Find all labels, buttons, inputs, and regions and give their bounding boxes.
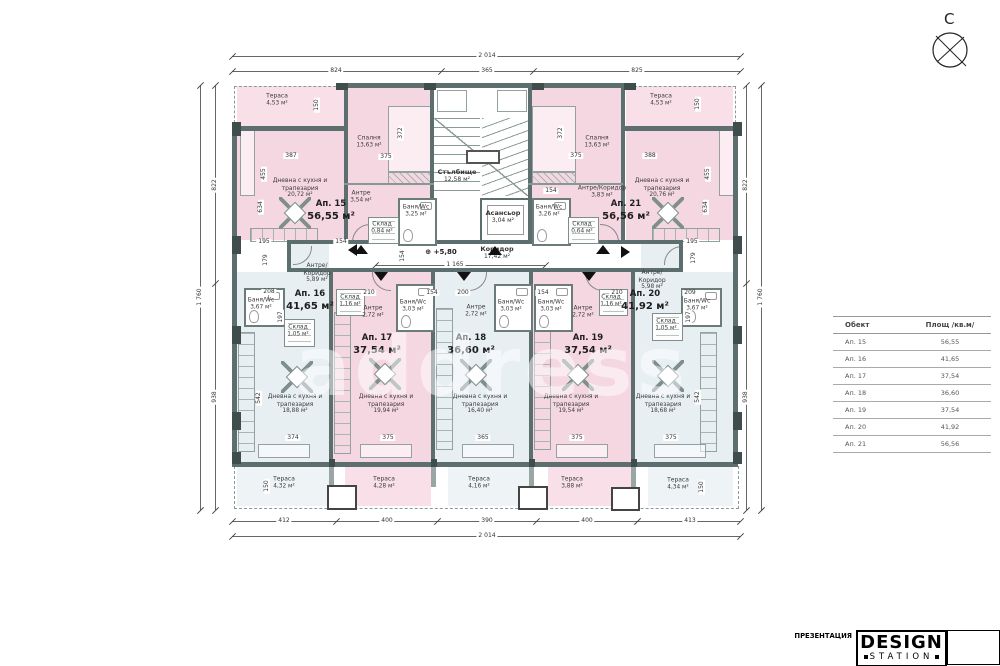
room-name: Дневна с кухня и трапезария [453, 393, 508, 408]
room-label: Дневна с кухня и трапезария18,88 м² [268, 393, 323, 415]
dining-table [280, 360, 314, 394]
room-label: Дневна с кухня и трапезария20,76 м² [635, 177, 690, 199]
cell-area: 56,55 [909, 338, 991, 346]
dimension-label: 938 [212, 389, 218, 404]
area-table-header: Обект Площ /кв.м/ [833, 316, 991, 334]
dining-table [368, 357, 402, 391]
dimension-label: 455 [261, 166, 267, 181]
room-name: Склад [339, 294, 360, 302]
entrance-arrow-icon [582, 272, 596, 281]
structural-pier [232, 122, 241, 136]
kitchen-counter [436, 308, 453, 450]
room-area: 4,53 м² [650, 100, 672, 107]
room-area: 16,40 м² [453, 408, 508, 415]
room-name: Дневна с кухня и трапезария [273, 177, 328, 192]
room-label: Баня/Wc3,03 м² [400, 299, 427, 314]
room-label-elevator: Асансьор 3,04 м² [486, 209, 521, 225]
room-name: Дневна с кухня и трапезария [268, 393, 323, 408]
room-area: 1,05 м² [655, 325, 676, 332]
room-label: Антре2,72 м² [465, 304, 486, 319]
room-area: 1,16 м² [339, 301, 360, 308]
room-area: 3,03 м² [498, 306, 525, 313]
room-label: Антре/ Коридор5,98 м² [638, 269, 665, 291]
dimension-label: 1 760 [197, 286, 203, 307]
apartment-area: 36,60 м² [447, 344, 495, 357]
room-name: Баня/Wc [538, 299, 565, 307]
room-label: Баня/Wc3,03 м² [498, 299, 525, 314]
apartment-number: Ап. 16 [286, 289, 334, 300]
dimension-label: 195 [256, 239, 271, 245]
room-name: Тераса [468, 476, 490, 484]
column-header-area: Площ /кв.м/ [909, 321, 991, 329]
entrance-arrow-icon [348, 244, 357, 256]
structural-pier [733, 122, 742, 136]
wall [679, 240, 683, 272]
dimension-label: 375 [378, 154, 393, 160]
furniture [532, 106, 576, 172]
room-name: Склад [600, 294, 621, 302]
logo-design: DESIGN [860, 635, 943, 651]
structural-pier [733, 236, 742, 254]
planter-box [518, 486, 548, 510]
room-area: 13,63 м² [356, 142, 381, 149]
cell-area: 41,92 [909, 423, 991, 431]
staircase [434, 118, 528, 196]
dimension-label: 400 [379, 518, 394, 524]
title-block-empty-box [947, 630, 1000, 665]
room-area: 4,32 м² [273, 483, 295, 490]
dimension-label: 150 [695, 96, 701, 111]
dimension-tick [737, 53, 744, 60]
apartment-number: Ап. 18 [447, 333, 495, 344]
level-mark: +5,80 [425, 248, 456, 256]
room-label: Антре2,72 м² [572, 305, 593, 320]
room-label: Баня/Wc3,26 м² [536, 204, 563, 219]
terrace-divider [431, 467, 436, 487]
dimension-tick [212, 507, 219, 514]
dimension-label: 208 [261, 289, 276, 295]
terrace-railing [234, 86, 346, 128]
room-area: 13,63 м² [584, 142, 609, 149]
dimension-label: 372 [558, 125, 564, 140]
structural-pier [631, 459, 637, 467]
dimension-label: 210 [361, 290, 376, 296]
apartment-label: Ап. 2041,92 м² [621, 289, 669, 313]
structural-pier [733, 326, 742, 344]
furniture [240, 128, 255, 196]
cell-object: Ап. 17 [833, 372, 909, 380]
structural-pier [232, 412, 241, 430]
apartment-number: Ап. 21 [602, 199, 650, 210]
wall [232, 462, 738, 467]
room-label: Склад1,16 м² [339, 294, 360, 309]
room-name: Дневна с кухня и трапезария [544, 393, 599, 408]
apartment-number: Ап. 15 [307, 199, 355, 210]
structural-pier [329, 459, 335, 467]
dimension-label: 150 [699, 479, 705, 494]
room-area: 5,89 м² [303, 277, 330, 284]
dimension-label: 365 [475, 435, 490, 441]
planter-box [611, 487, 640, 511]
cell-area: 36,60 [909, 389, 991, 397]
room-name: Антре [350, 190, 371, 198]
north-compass: С [912, 6, 988, 78]
dimension-label: 634 [703, 199, 709, 214]
room-label: Тераса4,16 м² [468, 476, 490, 491]
stair-rail [466, 150, 500, 164]
room-label: Дневна с кухня и трапезария18,68 м² [636, 393, 691, 415]
dimension-label: 375 [663, 435, 678, 441]
room-name: Тераса [650, 93, 672, 101]
dimension-label: 150 [314, 97, 320, 112]
room-name: Асансьор [486, 209, 521, 217]
dimension-label: 154 [535, 290, 550, 296]
logo-square-icon [935, 655, 939, 659]
room-area: 4,28 м² [373, 483, 395, 490]
room-label: Склад1,16 м² [600, 294, 621, 309]
dimension-label: 150 [264, 478, 270, 493]
apartment-label: Ап. 1937,54 м² [564, 333, 612, 357]
dimension-label: 2 014 [476, 533, 497, 539]
cell-object: Ап. 21 [833, 440, 909, 448]
dimension-label: 374 [285, 435, 300, 441]
structural-pier [529, 459, 535, 467]
dimension-label: 542 [695, 389, 701, 404]
room-label: Склад0,84 м² [371, 221, 392, 236]
room-name: Склад [371, 221, 392, 229]
structural-pier [624, 83, 636, 90]
cell-object: Ап. 15 [833, 338, 909, 346]
room-area: 12,58 м² [438, 176, 477, 184]
dimension-label: 542 [256, 390, 262, 405]
apartment-label: Ап. 1836,60 м² [447, 333, 495, 357]
room-area: 3,03 м² [400, 306, 427, 313]
room-name: Антре/ Коридор [303, 262, 330, 277]
room-name: Баня/Wc [400, 299, 427, 307]
entrance-arrow-icon [621, 246, 630, 258]
dimension-label: 375 [568, 153, 583, 159]
dimension-label: 822 [743, 177, 749, 192]
structural-pier [733, 452, 742, 464]
structural-pier [431, 459, 437, 467]
room-area: 18,88 м² [268, 408, 323, 415]
dimension-label: 1 760 [758, 286, 764, 307]
room-name: Баня/Wc [684, 298, 711, 306]
apartment-area: 56,55 м² [307, 210, 355, 223]
dimension-label: 195 [684, 239, 699, 245]
room-label: Дневна с кухня и трапезария20,72 м² [273, 177, 328, 199]
room-name: Тераса [667, 477, 689, 485]
room-label: Тераса3,88 м² [561, 476, 583, 491]
partition-wall [344, 183, 434, 185]
room-area: 2,72 м² [465, 311, 486, 318]
room-label: Склад1,05 м² [655, 318, 676, 333]
dimension-label: 825 [629, 68, 644, 74]
room-area: 3,67 м² [248, 304, 275, 311]
room-area: 2,72 м² [362, 312, 383, 319]
terrace-divider [529, 467, 534, 487]
dimension-label: 822 [212, 177, 218, 192]
room-name: Тераса [273, 476, 295, 484]
room-area: 3,26 м² [536, 211, 563, 218]
terrace-divider [631, 467, 636, 487]
dimension-label: 179 [691, 250, 697, 265]
wall [287, 240, 291, 272]
room-name: Склад [655, 318, 676, 326]
room-name: Тераса [373, 476, 395, 484]
room-area: 3,03 м² [538, 306, 565, 313]
dimension-label: 388 [642, 153, 657, 159]
apartment-area: 41,92 м² [621, 300, 669, 313]
logo-station: STATION [864, 652, 940, 662]
kitchen-counter [238, 332, 255, 452]
title-presentation: ПРЕЗЕНТАЦИЯ [577, 632, 852, 640]
column-header-object: Обект [833, 321, 909, 329]
table-row: Ап. 1556,55 [833, 334, 991, 351]
furniture [497, 90, 527, 112]
room-label: Баня/Wc3,67 м² [684, 298, 711, 313]
room-name: Антре [465, 304, 486, 312]
room-area: 1,05 м² [287, 331, 308, 338]
area-table-rows: Ап. 1556,55Ап. 1641,65Ап. 1737,54Ап. 183… [833, 334, 991, 453]
room-label: Тераса4,53 м² [650, 93, 672, 108]
structural-pier [424, 83, 436, 90]
room-label: Дневна с кухня и трапезария19,54 м² [544, 393, 599, 415]
room-name: Баня/Wc [536, 204, 563, 212]
apartment-label: Ап. 1641,65 м² [286, 289, 334, 313]
room-label: Баня/Wc3,25 м² [403, 204, 430, 219]
dimension-label: 375 [569, 435, 584, 441]
cell-object: Ап. 18 [833, 389, 909, 397]
dining-table [561, 358, 595, 392]
table-row: Ап. 2041,92 [833, 419, 991, 436]
table-row: Ап. 1836,60 [833, 385, 991, 402]
apartment-number: Ап. 19 [564, 333, 612, 344]
dimension-label: 1 165 [444, 262, 465, 268]
apartment-number: Ап. 20 [621, 289, 669, 300]
room-area: 3,67 м² [684, 305, 711, 312]
room-label: Тераса4,32 м² [273, 476, 295, 491]
dimension-label: 200 [455, 290, 470, 296]
dimension-label: 154 [400, 248, 406, 263]
apartment-number: Ап. 17 [353, 333, 401, 344]
entrance-arrow-icon [488, 246, 502, 255]
room-area: 2,72 м² [572, 312, 593, 319]
logo-square-icon [864, 655, 868, 659]
room-area: 0,84 м² [371, 228, 392, 235]
room-name: Стълбище [438, 168, 477, 176]
dimension-tick [737, 518, 744, 525]
dimension-label: 2 014 [476, 53, 497, 59]
furniture [258, 444, 310, 458]
dimension-line [746, 85, 747, 510]
structural-pier [232, 452, 241, 464]
apartment-area: 56,56 м² [602, 210, 650, 223]
room-name: Антре/Коридор [578, 185, 626, 193]
room-area: 3,25 м² [403, 211, 430, 218]
room-name: Склад [571, 221, 592, 229]
cell-area: 41,65 [909, 355, 991, 363]
room-label-staircase: Стълбище 12,58 м² [438, 168, 477, 184]
dimension-label: 390 [479, 518, 494, 524]
furniture [556, 444, 608, 458]
dimension-tick [197, 507, 204, 514]
dimension-label: 387 [283, 153, 298, 159]
structural-pier [232, 326, 241, 344]
room-label: Склад0,64 м² [571, 221, 592, 236]
room-label: Тераса4,34 м² [667, 477, 689, 492]
area-table: Обект Площ /кв.м/ Ап. 1556,55Ап. 1641,65… [833, 316, 991, 453]
table-row: Ап. 2156,56 [833, 436, 991, 453]
cell-area: 37,54 [909, 372, 991, 380]
kitchen-counter [700, 332, 717, 452]
room-area: 19,94 м² [359, 408, 414, 415]
entrance-arrow-icon [374, 272, 388, 281]
table-row: Ап. 1641,65 [833, 351, 991, 368]
room-label: Дневна с кухня и трапезария19,94 м² [359, 393, 414, 415]
furniture [388, 106, 432, 172]
room-name: Спалня [356, 135, 381, 143]
entrance-arrow-icon [596, 245, 610, 254]
dimension-tick [743, 507, 750, 514]
room-label: Спалня13,63 м² [584, 135, 609, 150]
dimension-label: 634 [258, 199, 264, 214]
apartment-label: Ап. 2156,56 м² [602, 199, 650, 223]
apartment-area: 41,65 м² [286, 300, 334, 313]
cell-area: 56,56 [909, 440, 991, 448]
room-label: Спалня13,63 м² [356, 135, 381, 150]
dining-table [651, 196, 685, 230]
dining-table [651, 359, 685, 393]
structural-pier [232, 236, 241, 254]
north-letter: С [944, 10, 954, 28]
room-name: Дневна с кухня и трапезария [359, 393, 414, 408]
furniture [654, 444, 706, 458]
structural-pier [336, 83, 348, 90]
wall [625, 126, 738, 131]
room-name: Дневна с кухня и трапезария [636, 393, 691, 408]
room-name: Баня/Wc [248, 297, 275, 305]
furniture [360, 444, 412, 458]
dimension-tick [737, 533, 744, 540]
apartment-area: 37,54 м² [564, 344, 612, 357]
room-area: 3,04 м² [486, 217, 521, 225]
room-area: 4,53 м² [266, 100, 288, 107]
wall [340, 83, 632, 88]
dimension-label: 375 [380, 435, 395, 441]
dimension-label: 154 [424, 290, 439, 296]
terrace-railing [624, 86, 736, 128]
apartment-area: 37,54 м² [353, 344, 401, 357]
room-name: Спалня [584, 135, 609, 143]
furniture [437, 90, 467, 112]
room-name: Тераса [266, 93, 288, 101]
table-row: Ап. 1737,54 [833, 368, 991, 385]
cell-area: 37,54 [909, 406, 991, 414]
room-name: Склад [287, 324, 308, 332]
room-label: Антре/Коридор3,83 м² [578, 185, 626, 200]
plan-sheet: Стълбище 12,58 м² Асансьор 3,04 м² Корид… [0, 0, 1000, 666]
room-label: Антре2,72 м² [362, 305, 383, 320]
room-area: 3,88 м² [561, 483, 583, 490]
room-label: Баня/Wc3,67 м² [248, 297, 275, 312]
room-name: Тераса [561, 476, 583, 484]
room-label: Тераса4,53 м² [266, 93, 288, 108]
room-name: Баня/Wc [498, 299, 525, 307]
room-label: Антре/ Коридор5,89 м² [303, 262, 330, 284]
room-area: 19,54 м² [544, 408, 599, 415]
dimension-label: 154 [543, 188, 558, 194]
apartment-label: Ап. 1737,54 м² [353, 333, 401, 357]
furniture [719, 128, 734, 196]
room-label: Дневна с кухня и трапезария16,40 м² [453, 393, 508, 415]
design-station-logo: DESIGN STATION [856, 630, 947, 666]
room-area: 18,68 м² [636, 408, 691, 415]
cell-object: Ап. 19 [833, 406, 909, 414]
dimension-label: 412 [276, 518, 291, 524]
structural-pier [733, 412, 742, 430]
dimension-label: 154 [333, 239, 348, 245]
dimension-label: 455 [705, 166, 711, 181]
room-label: Склад1,05 м² [287, 324, 308, 339]
wall [232, 126, 345, 131]
room-name: Дневна с кухня и трапезария [635, 177, 690, 192]
apartment-label: Ап. 1556,55 м² [307, 199, 355, 223]
room-area: 4,16 м² [468, 483, 490, 490]
dimension-tick [758, 507, 765, 514]
title-text: ПРЕЗЕНТАЦИЯ ЖИЛИЩНА СГРАДА в УПИ II, кв.… [577, 632, 852, 666]
planter-box [327, 485, 357, 510]
room-name: Антре/ Коридор [638, 269, 665, 284]
room-name: Баня/Wc [403, 204, 430, 212]
structural-pier [532, 83, 544, 90]
room-label: Баня/Wc3,03 м² [538, 299, 565, 314]
room-area: 1,16 м² [600, 301, 621, 308]
furniture [462, 444, 514, 458]
dimension-label: 209 [682, 290, 697, 296]
room-name: Антре [572, 305, 593, 313]
dimension-tick [737, 68, 744, 75]
room-area: 4,34 м² [667, 484, 689, 491]
wall [287, 268, 683, 272]
terrace-divider [329, 467, 334, 487]
dimension-label: 413 [682, 518, 697, 524]
kitchen-counter [334, 312, 351, 454]
logo-station-text: STATION [870, 652, 934, 662]
cell-object: Ап. 20 [833, 423, 909, 431]
room-name: Антре [362, 305, 383, 313]
entrance-arrow-icon [457, 272, 471, 281]
table-row: Ап. 1937,54 [833, 402, 991, 419]
dining-table [459, 358, 493, 392]
dimension-line [215, 85, 216, 510]
room-label: Тераса4,28 м² [373, 476, 395, 491]
dimension-label: 197 [278, 309, 284, 324]
cell-object: Ап. 16 [833, 355, 909, 363]
dimension-label: 400 [579, 518, 594, 524]
dimension-label: 938 [743, 389, 749, 404]
dimension-label: 179 [263, 252, 269, 267]
dimension-label: 365 [479, 68, 494, 74]
dimension-label: 372 [398, 125, 404, 140]
dimension-label: 824 [328, 68, 343, 74]
room-area: 0,64 м² [571, 228, 592, 235]
